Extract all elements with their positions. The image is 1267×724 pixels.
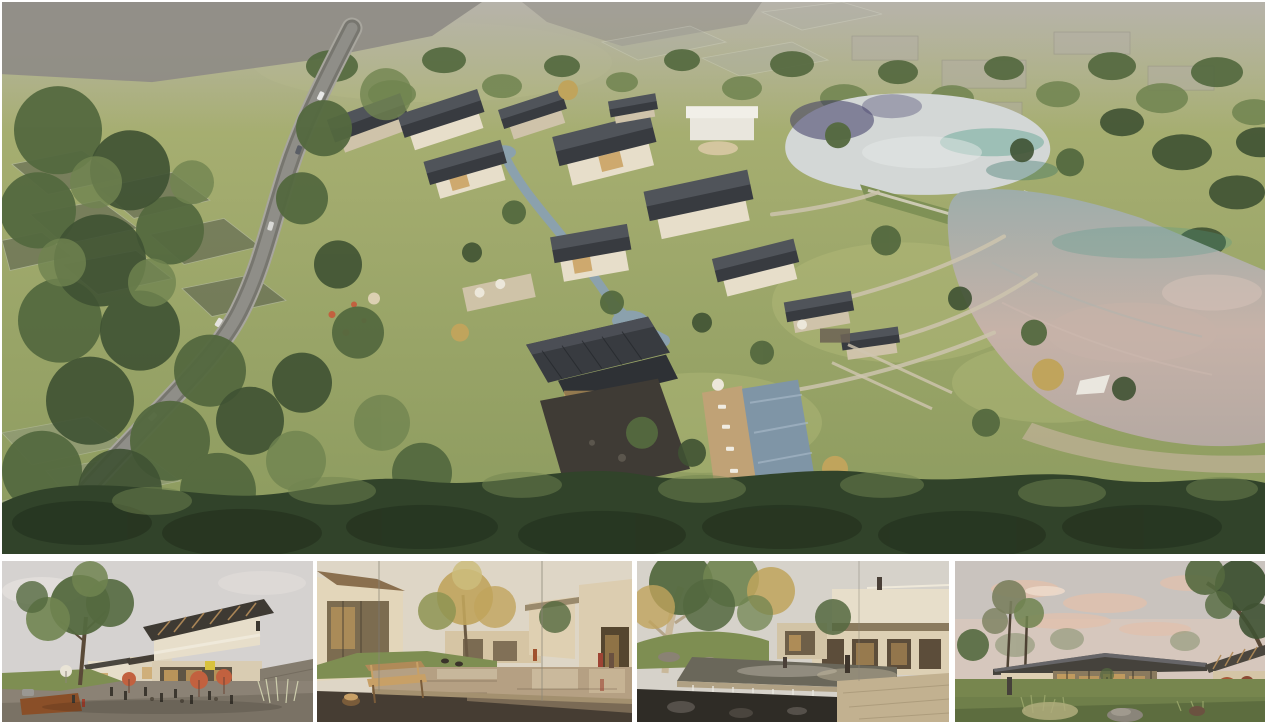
distant-tree	[539, 601, 571, 633]
presentation-board: Bird's-eye rendering of a resort village…	[0, 0, 1267, 724]
yellow-sign	[205, 661, 215, 670]
center-tree	[815, 599, 851, 635]
aerial-site-render: Bird's-eye rendering of a resort village…	[2, 2, 1265, 554]
stone-deck-right	[837, 673, 949, 722]
thumbnail-evening-pavilion-render: Evening view of a single-storey pavilion…	[955, 561, 1265, 722]
standing-person	[845, 655, 850, 673]
thumbnail-pond-bench-render: Warm courtyard scene: a slatted wooden b…	[317, 561, 632, 722]
balcony-people	[256, 621, 260, 631]
person	[1007, 677, 1012, 695]
parked-car	[22, 689, 34, 696]
stump	[1189, 706, 1205, 716]
thumbnail-waterfall-courtyard-render: Garden courtyard with a stone-edged pond…	[637, 561, 949, 722]
grass-clump	[1022, 702, 1078, 720]
terrace-person	[877, 577, 882, 590]
meadow-foreground	[955, 677, 1265, 722]
thumbnail-plaza-render: Street-level view of the central plaza a…	[2, 561, 313, 722]
